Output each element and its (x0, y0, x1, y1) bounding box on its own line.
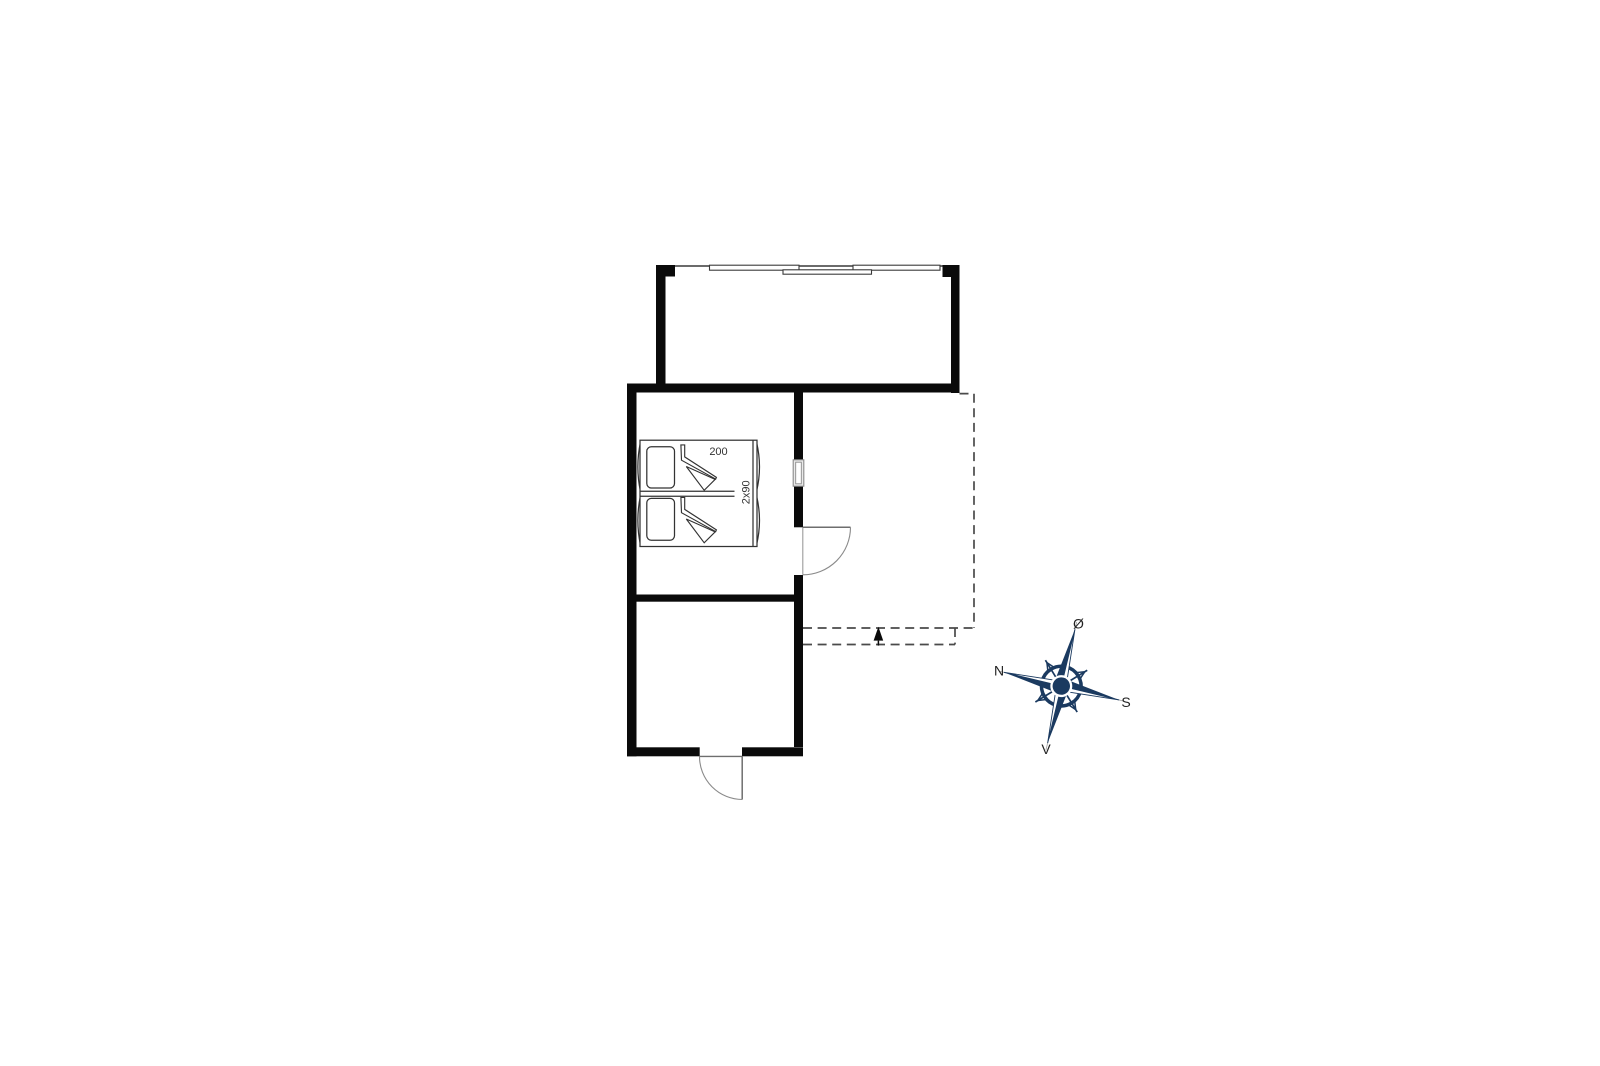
svg-text:N: N (994, 663, 1004, 679)
svg-text:S: S (1121, 694, 1130, 710)
svg-text:V: V (1041, 741, 1051, 757)
svg-text:200: 200 (709, 446, 727, 458)
svg-text:2x90: 2x90 (740, 480, 752, 504)
svg-text:Ø: Ø (1073, 616, 1084, 632)
